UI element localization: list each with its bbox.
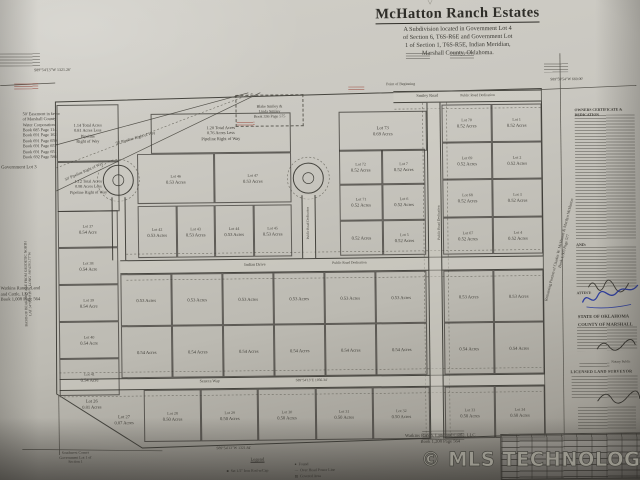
lot: Lot 280.50 Acres: [144, 389, 202, 442]
lot-acreage: 0.54 Acre: [79, 230, 97, 235]
lot-acreage: 0.53 Acres: [136, 297, 156, 302]
lot-acreage: 0.54 Acre: [80, 304, 98, 309]
lot-acreage: 0.52 Acres: [351, 168, 371, 173]
lot: Lot 700.52 Acres: [441, 104, 491, 142]
lot-acreage: 0.50 Acres: [163, 416, 183, 421]
lot-acreage: 0.50 Acres: [220, 415, 240, 420]
lot: 0.53 Acres: [120, 274, 172, 327]
lot: Lot 720.52 Acres: [339, 149, 382, 185]
map-note: Public Road Dedication: [436, 188, 441, 258]
lot-acreage: 0.52 Acres: [395, 238, 415, 243]
lot: Lot 290.50 Acres: [201, 389, 259, 442]
lot-acreage: 0.50 Acres: [510, 412, 530, 417]
lot: Lot 30.52 Acres: [492, 178, 542, 216]
lot-number: Lot 67: [463, 230, 474, 235]
covered-area-icon: ▨: [295, 474, 298, 478]
lot-number: Lot 6: [400, 196, 409, 201]
legend-item-label: Found: [299, 462, 309, 466]
lot-number: Lot 4: [514, 229, 523, 234]
lot-number: Lot 41: [84, 372, 95, 377]
lot: Lot 20.52 Acres: [492, 141, 542, 179]
lot: 0.53 Acres: [324, 271, 376, 324]
map-label-line: Pipeline Right of Way: [70, 189, 107, 195]
map-label: BASIS OF BEARINGS ARE FROM GEODETIC NORT…: [23, 214, 34, 354]
lot: Lot 420.53 Acres: [138, 206, 177, 258]
lot-acreage: 0.53 Acres: [147, 232, 167, 237]
lot-number: Lot 1: [512, 117, 521, 122]
map-label-line: Pipeline Right of Way: [201, 136, 240, 142]
legend-item: ▨Covered Area: [295, 474, 321, 478]
map-label: Blake Smiley &Linda SmileyBook 336 Page …: [235, 94, 303, 127]
lot-acreage: 0.53 Acres: [459, 294, 479, 299]
lot: 0.54 Acres: [223, 325, 275, 378]
lot: Lot 370.54 Acre: [58, 210, 118, 248]
map-note: Public Road Dedication: [460, 93, 494, 97]
lot-acreage: 0.52 Acres: [457, 161, 477, 166]
plat-map: Lot 700.52 AcresLot 10.52 AcresLot 690.5…: [0, 0, 640, 480]
lot-number: Lot 31: [339, 408, 350, 413]
lot: Lot 430.53 Acres: [176, 205, 215, 257]
map-note: S89°54'13"W 1321.26': [34, 67, 71, 72]
legend-item-label: Covered Area: [300, 474, 321, 478]
lot: 0.53 Acres: [171, 273, 223, 326]
lot-acreage: 0.54 Acres: [509, 345, 529, 350]
lot-acreage: 0.53 Acres: [509, 293, 529, 298]
map-label: Lot 730.69 Acres: [339, 111, 427, 152]
iron-rod-found-icon: ●: [295, 462, 297, 466]
lot-acreage: 0.53 Acres: [263, 231, 283, 236]
lot-number: Lot 38: [83, 261, 94, 266]
lot: Lot 440.53 Acres: [215, 205, 254, 257]
lot-number: Lot 40: [84, 335, 95, 340]
lot: Lot 690.52 Acres: [442, 142, 492, 180]
map-label: Watkins Ranch, Land and Cattle, LLCBook …: [370, 432, 510, 445]
legend-item: —Over Head Power Line: [295, 468, 336, 472]
lot-acreage: 0.50 Acres: [277, 415, 297, 420]
lot-acreage: 0.50 Acres: [392, 413, 412, 418]
lot-acreage: 0.52 Acres: [507, 123, 527, 128]
lot-number: Lot 42: [152, 226, 163, 231]
lot-number: Lot 71: [356, 197, 367, 202]
lot-number: Lot 45: [267, 225, 278, 230]
map-label: 50' Easement in favorof Marshall CountyW…: [23, 111, 100, 160]
signature-ink: [582, 280, 639, 404]
lot: Lot 450.53 Acres: [253, 204, 292, 256]
state-of-oklahoma-line: STATE OF OKLAHOMA: [578, 313, 629, 319]
legend-item-label: Over Head Power Line: [300, 468, 335, 472]
map-note: Point of Beginning: [386, 82, 415, 86]
map-note: Indian Drive: [244, 261, 265, 266]
lot-number: Lot 70: [461, 118, 472, 123]
lot-acreage: 0.53 Acres: [166, 179, 186, 184]
lot-acreage: 0.53 Acres: [224, 231, 244, 236]
map-note: Seneca Way: [200, 379, 220, 384]
lot-acreage: 0.53 Acres: [340, 295, 360, 300]
map-note: Government Lot 3: [1, 165, 36, 170]
lot: Lot 470.53 Acres: [214, 152, 292, 203]
map-label-line: Book 692 Page 586: [23, 153, 99, 159]
lot: Lot 310.50 Acres: [315, 387, 373, 440]
lot-acreage: 0.54 Acres: [341, 347, 361, 352]
legend-item: ●Found: [295, 462, 309, 466]
lot: Lot 400.54 Acre: [59, 321, 119, 359]
lot: Lot 710.52 Acres: [339, 185, 382, 221]
lot-number: Lot 34: [515, 406, 526, 411]
lot: Lot 390.54 Acre: [58, 284, 118, 322]
map-label: Southwest CornerGovernment Lot 1 ofSecti…: [46, 450, 104, 465]
map-label-line: 0.81 Acres: [66, 404, 118, 410]
lot-number: Lot 28: [167, 410, 178, 415]
lot: Lot 60.52 Acres: [382, 184, 425, 220]
legend-title: Legend: [250, 457, 264, 463]
lot: Lot 320.50 Acres: [372, 387, 430, 440]
lot-acreage: 0.52 Acres: [352, 235, 372, 240]
lot-acreage: 0.54 Acre: [80, 341, 98, 346]
county-of-marshall-line: COUNTY OF MARSHALL: [578, 321, 633, 327]
lot: Lot 300.50 Acres: [258, 388, 316, 441]
lot: 0.53 Acres: [273, 272, 325, 325]
lot-number: Lot 68: [462, 193, 473, 198]
lot-acreage: 0.52 Acres: [458, 198, 478, 203]
lot-acreage: 0.54 Acres: [290, 348, 310, 353]
lot: 0.52 Acres: [340, 220, 383, 256]
map-label-line: 0.87 Acres: [98, 420, 150, 426]
map-note: S89°54'13"W 1321.84': [216, 446, 251, 450]
lot-acreage: 0.53 Acres: [238, 296, 258, 301]
lot-number: Lot 29: [224, 409, 235, 414]
legend-item: ■Set 1/2" Iron Rod w/Cap: [227, 469, 269, 473]
lot-number: Lot 44: [229, 225, 240, 230]
lot-acreage: 0.53 Acres: [243, 178, 263, 183]
map-label: Lot 270.87 Acres: [98, 414, 150, 426]
lot-number: Lot 30: [282, 409, 293, 414]
lot-acreage: 0.50 Acres: [460, 413, 480, 418]
owners-certificate-heading: OWNERS CERTIFICATE & DEDICATION: [575, 107, 637, 117]
paper-sheet: ▽ McHatton Ranch Estates A Subdivision l…: [0, 0, 640, 480]
lot-number: Lot 46: [170, 173, 181, 178]
lot-acreage: 0.53 Acres: [289, 296, 309, 301]
lot-acreage: 0.53 Acres: [186, 232, 206, 237]
attest-label: ATTEST:: [577, 291, 592, 295]
map-note: Public Road Dedication: [305, 191, 310, 255]
lot-number: Lot 32: [396, 408, 407, 413]
lot-acreage: 0.54 Acres: [188, 349, 208, 354]
iron-rod-set-icon: ■: [227, 469, 229, 473]
lot-number: Lot 5: [400, 232, 409, 237]
lot-number: Lot 43: [190, 226, 201, 231]
lot-number: Lot 3: [513, 192, 522, 197]
lot-acreage: 0.52 Acres: [508, 235, 528, 240]
lot: 0.54 Acres: [494, 321, 545, 374]
lot: Lot 70.52 Acres: [382, 149, 425, 185]
map-note: S89°54'13"E 1056.34': [296, 378, 328, 382]
lot-acreage: 0.52 Acres: [508, 198, 528, 203]
lot: 0.54 Acres: [325, 323, 377, 376]
lot-acreage: 0.53 Acres: [391, 294, 411, 299]
lot-acreage: 0.52 Acres: [507, 160, 527, 165]
lot: 0.54 Acres: [121, 326, 173, 379]
licensed-land-surveyor-heading: LICENSED LAND SURVEYOR: [570, 368, 632, 374]
lot-acreage: 0.52 Acres: [457, 123, 477, 128]
lot-number: Lot 2: [513, 154, 522, 159]
watermark: © MLS TECHNOLOGY INC 2025: [421, 448, 640, 471]
lot: Lot 50.52 Acres: [383, 219, 426, 255]
lot-acreage: 0.54 Acre: [81, 378, 99, 383]
map-note: S89°59'54"W 660.00': [550, 77, 583, 81]
map-label-line: Book 336 Page 575: [254, 113, 286, 118]
lot: Lot 460.53 Acres: [137, 153, 215, 204]
lot-acreage: 0.52 Acres: [394, 202, 414, 207]
lot-acreage: 0.54 Acres: [392, 346, 412, 351]
lot: 0.54 Acres: [376, 323, 428, 376]
lot-number: Lot 47: [247, 172, 258, 177]
power-line-icon: —: [295, 468, 299, 472]
lot: Lot 40.52 Acres: [493, 216, 543, 254]
lot-acreage: 0.54 Acres: [459, 346, 479, 351]
lot-number: Lot 33: [465, 407, 476, 412]
map-note: Public Road Dedication: [332, 261, 366, 265]
lot-acreage: 0.54 Acres: [239, 348, 259, 353]
lot: 0.53 Acres: [375, 271, 427, 324]
lot: 0.53 Acres: [443, 270, 494, 323]
notary-public-label: Notary Public: [611, 359, 630, 363]
lot: Lot 330.50 Acres: [445, 386, 496, 439]
lot-acreage: 0.52 Acres: [394, 167, 414, 172]
lot-acreage: 0.53 Acres: [187, 297, 207, 302]
lot: Lot 380.54 Acre: [58, 247, 118, 285]
lot-number: Lot 72: [355, 162, 366, 167]
legend-item-label: Set 1/2" Iron Rod w/Cap: [231, 469, 269, 473]
lot-number: Lot 39: [83, 298, 94, 303]
lot: Lot 10.52 Acres: [491, 103, 541, 141]
lot-number: Lot 7: [399, 161, 408, 166]
lot-acreage: 0.54 Acre: [79, 267, 97, 272]
lot-acreage: 0.54 Acres: [137, 349, 157, 354]
lot-acreage: 0.52 Acres: [458, 236, 478, 241]
plat-photo: ▽ McHatton Ranch Estates A Subdivision l…: [0, 0, 640, 480]
lot: 0.53 Acres: [493, 269, 544, 322]
lot: Lot 340.50 Acres: [495, 385, 546, 438]
lot: 0.54 Acres: [172, 325, 224, 378]
map-label-line: Section 1: [46, 460, 104, 465]
lot: Lot 680.52 Acres: [442, 179, 492, 217]
lot-number: Lot 69: [462, 155, 473, 160]
lot: Lot 410.54 Acre: [59, 358, 119, 396]
lot: 0.53 Acres: [222, 273, 274, 326]
lot: Lot 670.52 Acres: [443, 217, 493, 255]
lot: 0.54 Acres: [444, 322, 495, 375]
lot: 0.54 Acres: [274, 324, 326, 377]
lot-acreage: 0.50 Acres: [334, 414, 354, 419]
and-label: AND:: [576, 242, 586, 247]
lot-acreage: 0.52 Acres: [351, 203, 371, 208]
lot-number: Lot 37: [83, 224, 94, 229]
map-note: Smiley Road: [416, 93, 438, 98]
map-label: Lot 260.81 Acres: [66, 398, 118, 410]
map-label-line: 0.69 Acres: [373, 131, 393, 137]
